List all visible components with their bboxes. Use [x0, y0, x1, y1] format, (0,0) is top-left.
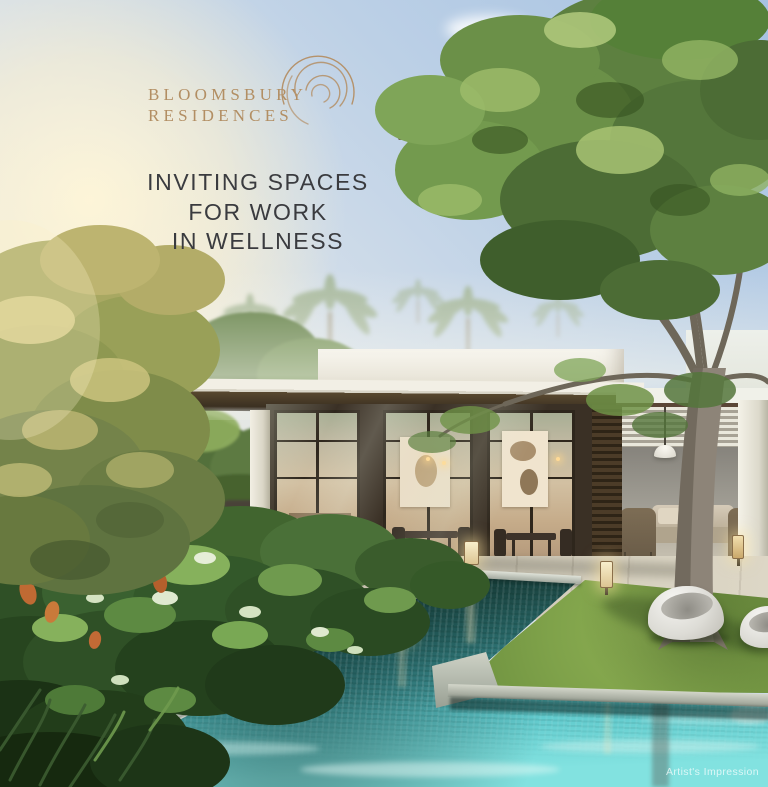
- headline-line3: IN WELLNESS: [48, 227, 468, 257]
- hero-image: BLOOMSBURY RESIDENCES INVITING SPACES FO…: [0, 0, 768, 787]
- logo-swirl-icon: [272, 46, 364, 138]
- left-tree-illustration: [0, 0, 768, 787]
- headline: INVITING SPACES FOR WORK IN WELLNESS: [48, 168, 468, 257]
- headline-line1: INVITING SPACES: [48, 168, 468, 198]
- headline-line2: FOR WORK: [48, 198, 468, 228]
- left-tree-foliage: [0, 220, 225, 595]
- artist-impression-caption: Artist's Impression: [666, 766, 759, 778]
